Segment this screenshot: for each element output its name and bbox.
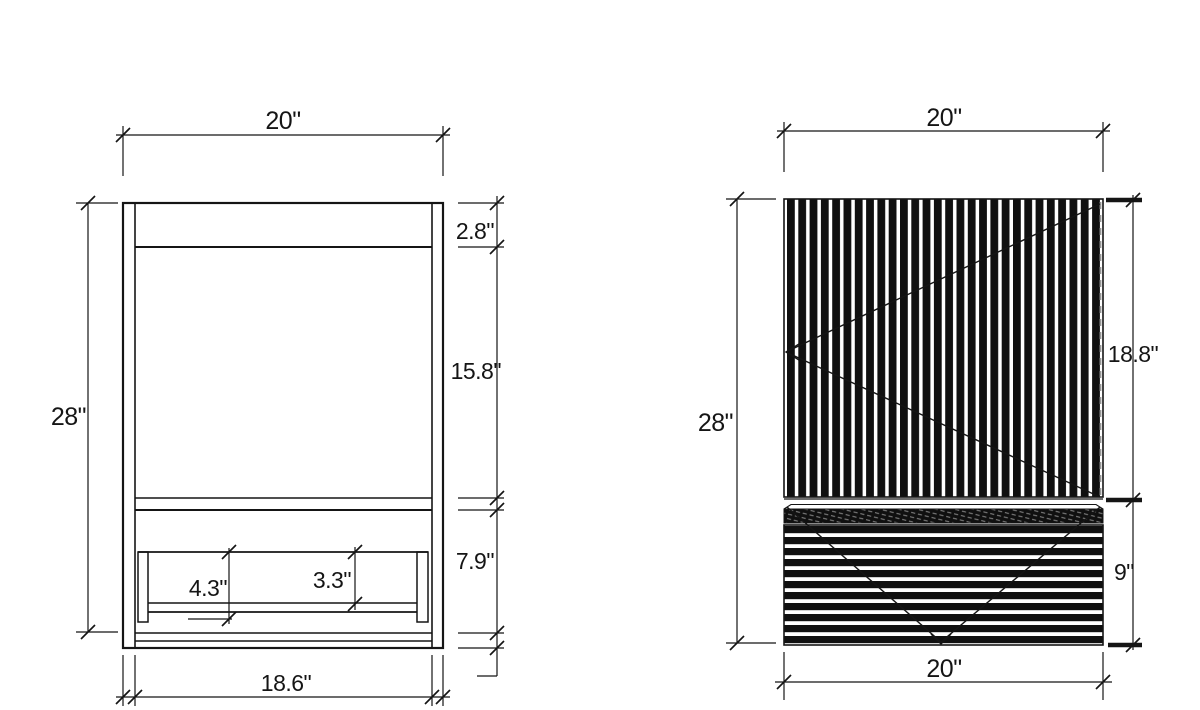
dense-hatch-band (784, 509, 1103, 523)
lower-panel (784, 507, 1103, 645)
dim-side-height-label: 28" (698, 409, 733, 437)
dimension-drawing-svg: 20" 28" 2.8" 15.8 (0, 0, 1200, 710)
dim-front-bottom-width-label: 18.6" (261, 670, 312, 696)
technical-drawing-page: 20" 28" 2.8" 15.8 (0, 0, 1200, 710)
upper-slat-panel (784, 199, 1103, 497)
dim-upper-panel-label: 18.8" (1108, 341, 1159, 367)
dim-front-height-label: 28" (51, 403, 86, 431)
dim-lower-panel-label: 9" (1114, 559, 1134, 585)
dim-side-top-width-label: 20" (926, 104, 961, 132)
dim-base-label: 7.9" (456, 548, 494, 574)
vertical-slat-hatch (784, 199, 1103, 497)
horizontal-slat-hatch (784, 525, 1103, 645)
dim-opening-label: 15.8" (451, 358, 502, 384)
dim-front-top-width-label: 20" (265, 107, 300, 135)
dim-side-bottom-width-label: 20" (926, 655, 961, 683)
dim-shelf-total-label: 4.3" (189, 575, 227, 601)
dim-top-rail-label: 2.8" (456, 218, 494, 244)
dim-shelf-clear-label: 3.3" (313, 567, 351, 593)
